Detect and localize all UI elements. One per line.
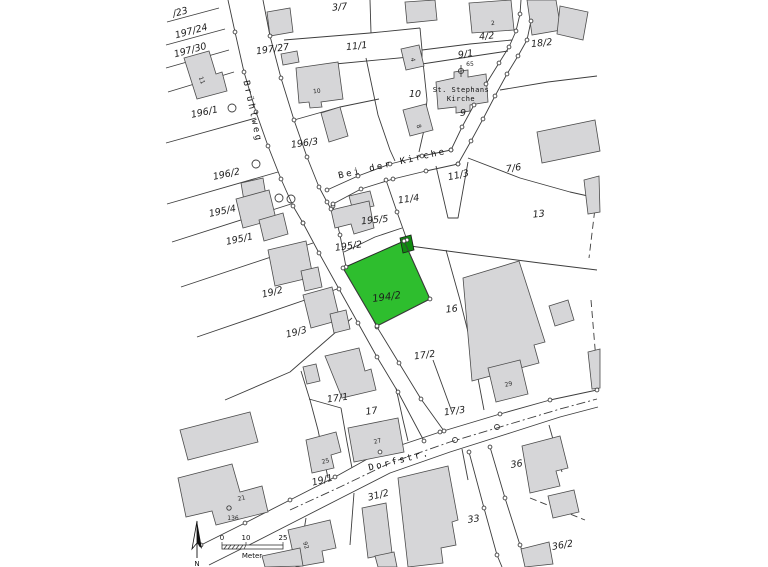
boundary-vertex-dot	[442, 429, 446, 433]
boundary-vertex-dot	[375, 355, 379, 359]
boundary-vertex-dot	[518, 543, 522, 547]
parcel-label-7-6: 7/6	[505, 162, 522, 175]
boundary-vertex-dot	[402, 239, 406, 243]
boundary-vertex-dot	[341, 266, 345, 270]
boundary-vertex-dot	[325, 188, 329, 192]
parcel-label-9: 9	[460, 108, 466, 119]
boundary-vertex-dot	[378, 450, 382, 454]
scalebar-tick-0: 0	[220, 534, 224, 542]
parcel-label-36: 36	[510, 458, 524, 471]
parcel-label-33: 33	[467, 513, 481, 526]
boundary-vertex-dot	[391, 177, 395, 181]
scalebar-unit: Meter	[242, 552, 262, 560]
parcel-label-11-1: 11/1	[346, 40, 368, 53]
boundary-vertex-dot	[291, 204, 295, 208]
boundary-vertex-dot	[514, 29, 518, 33]
parcel-label-18-2: 18/2	[531, 37, 553, 50]
boundary-vertex-dot	[505, 72, 509, 76]
boundary-vertex-dot	[472, 103, 476, 107]
boundary-vertex-dot	[301, 221, 305, 225]
boundary-vertex-dot	[317, 251, 321, 255]
boundary-vertex-dot	[481, 117, 485, 121]
boundary-vertex-dot	[242, 70, 246, 74]
boundary-vertex-dot	[305, 155, 309, 159]
boundary-vertex-dot	[525, 38, 529, 42]
boundary-vertex-dot	[449, 148, 453, 152]
boundary-vertex-dot	[279, 76, 283, 80]
boundary-vertex-dot	[467, 450, 471, 454]
boundary-vertex-dot	[338, 233, 342, 237]
boundary-vertex-dot	[497, 61, 501, 65]
boundary-vertex-dot	[337, 287, 341, 291]
boundary-vertex-dot	[493, 94, 497, 98]
church-name-line1: St. Stephans	[433, 86, 490, 94]
boundary-vertex-dot	[331, 202, 335, 206]
boundary-vertex-dot	[548, 398, 552, 402]
boundary-vertex-dot	[268, 34, 272, 38]
boundary-vertex-dot	[456, 162, 460, 166]
parcel-label-4-2: 4/2	[479, 30, 495, 43]
cadastral-map-canvas: /23197/24197/30196/1197/273/711/14/29/11…	[0, 0, 768, 567]
boundary-vertex-dot	[356, 321, 360, 325]
boundary-vertex-dot	[333, 475, 337, 479]
boundary-vertex-dot	[317, 185, 321, 189]
boundary-vertex-dot	[518, 12, 522, 16]
boundary-vertex-dot	[292, 118, 296, 122]
parcel-label-17: 17	[365, 405, 379, 418]
cadastral-map-page: /23197/24197/30196/1197/273/711/14/29/11…	[0, 0, 768, 567]
building-number-65: 65	[466, 61, 474, 68]
boundary-vertex-dot	[498, 412, 502, 416]
parcel-label-16: 16	[445, 303, 458, 315]
boundary-vertex-dot	[325, 200, 329, 204]
boundary-vertex-dot	[428, 297, 432, 301]
parcel-label-10: 10	[409, 89, 421, 100]
boundary-vertex-dot	[397, 361, 401, 365]
boundary-vertex-dot	[507, 45, 511, 49]
scalebar-tick-25: 25	[279, 534, 288, 542]
boundary-vertex-dot	[359, 187, 363, 191]
boundary-vertex-dot	[469, 139, 473, 143]
boundary-vertex-dot	[266, 144, 270, 148]
boundary-vertex-dot	[529, 19, 533, 23]
boundary-vertex-dot	[233, 30, 237, 34]
boundary-vertex-dot	[495, 553, 499, 557]
boundary-vertex-dot	[375, 324, 379, 328]
building-number-2: 2	[491, 20, 495, 27]
boundary-vertex-dot	[395, 210, 399, 214]
boundary-vertex-dot	[419, 397, 423, 401]
building-number-10: 10	[313, 88, 322, 96]
boundary-vertex-dot	[516, 54, 520, 58]
building-number-136: 136	[227, 515, 239, 522]
boundary-vertex-dot	[482, 506, 486, 510]
boundary-vertex-dot	[288, 498, 292, 502]
scalebar-tick-10: 10	[242, 534, 251, 542]
parcel-label-13: 13	[532, 208, 545, 220]
boundary-vertex-dot	[595, 388, 599, 392]
parcel-label-3-7: 3/7	[332, 1, 348, 14]
boundary-vertex-dot	[279, 177, 283, 181]
boundary-vertex-dot	[384, 178, 388, 182]
boundary-vertex-dot	[243, 521, 247, 525]
parcel-label-9-1: 9/1	[457, 48, 474, 61]
boundary-vertex-dot	[422, 439, 426, 443]
boundary-vertex-dot	[396, 390, 400, 394]
boundary-vertex-dot	[503, 496, 507, 500]
north-label: N	[194, 560, 199, 567]
boundary-vertex-dot	[460, 125, 464, 129]
boundary-vertex-dot	[438, 430, 442, 434]
church-name-line2: Kirche	[447, 95, 475, 103]
boundary-vertex-dot	[424, 169, 428, 173]
boundary-vertex-dot	[488, 445, 492, 449]
